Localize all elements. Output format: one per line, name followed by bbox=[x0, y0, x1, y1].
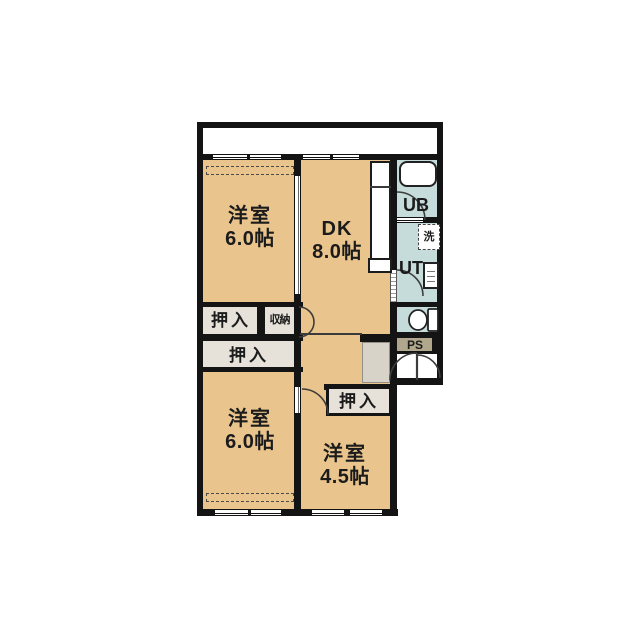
entry-step-floor bbox=[362, 342, 390, 383]
wall-washroom-bottom bbox=[390, 302, 443, 307]
floor-plan: 洗 洋室 6.0帖 DK 8.0帖 洋室 6.0帖 洋室 4.5帖 bbox=[0, 0, 640, 640]
oshiire-se-label: 押入 bbox=[326, 393, 392, 410]
window-dk-1 bbox=[303, 154, 330, 160]
bedroom-sw-type: 洋室 bbox=[203, 408, 297, 431]
window-bedroom-sw-1 bbox=[215, 509, 248, 516]
entrance-floor bbox=[397, 355, 437, 378]
kitchen-counter-divider-1 bbox=[370, 186, 391, 188]
wall-ps-right bbox=[432, 333, 438, 352]
bedroom-nw-size: 6.0帖 bbox=[203, 228, 297, 251]
dining-kitchen-label: DK 8.0帖 bbox=[299, 218, 375, 264]
bedroom-sw-size: 6.0帖 bbox=[203, 431, 297, 454]
bedroom-se-size: 4.5帖 bbox=[299, 466, 391, 489]
wall-closet-top bbox=[197, 302, 303, 307]
oshiire-mid-label: 押入 bbox=[202, 347, 296, 364]
window-bedroom-nw-1 bbox=[213, 154, 247, 160]
toilet-floor bbox=[397, 307, 437, 332]
bedroom-nw-label: 洋室 6.0帖 bbox=[203, 205, 297, 251]
window-dk-2 bbox=[333, 154, 359, 160]
bedroom-sw-label: 洋室 6.0帖 bbox=[203, 408, 297, 454]
window-bedroom-se-2 bbox=[350, 509, 382, 516]
bedroom-se-type: 洋室 bbox=[299, 443, 391, 466]
wall-hall-stub bbox=[360, 334, 390, 342]
oshiire-north-label: 押入 bbox=[202, 312, 260, 329]
dining-kitchen-size: 8.0帖 bbox=[299, 241, 375, 264]
dining-kitchen-type: DK bbox=[299, 218, 375, 241]
washing-machine-pan: 洗 bbox=[418, 224, 440, 250]
pipe-space-label: PS bbox=[398, 339, 432, 351]
dashed-line-bedroom-sw bbox=[206, 493, 294, 502]
balcony bbox=[203, 128, 437, 154]
window-bedroom-se-1 bbox=[312, 509, 344, 516]
bathtub bbox=[399, 161, 437, 187]
bedroom-nw-type: 洋室 bbox=[203, 205, 297, 228]
wall-closet-bottom bbox=[197, 367, 303, 372]
door-gap-unit-bath bbox=[397, 217, 423, 223]
bedroom-se-label: 洋室 4.5帖 bbox=[299, 443, 391, 489]
wall-entrance-bottom bbox=[390, 378, 443, 385]
shuno-storage-label: 収納 bbox=[263, 315, 296, 326]
threshold-dk-hall bbox=[300, 333, 362, 335]
washing-machine-label: 洗 bbox=[424, 232, 435, 243]
utility-room-label: UT bbox=[394, 259, 428, 277]
wall-closet-mid bbox=[197, 334, 303, 341]
dashed-line-bedroom-nw bbox=[206, 166, 294, 175]
window-bedroom-sw-2 bbox=[251, 509, 281, 516]
window-bedroom-nw-2 bbox=[250, 154, 281, 160]
unit-bath-label: UB bbox=[398, 196, 434, 214]
wall-outer-top bbox=[197, 122, 443, 128]
